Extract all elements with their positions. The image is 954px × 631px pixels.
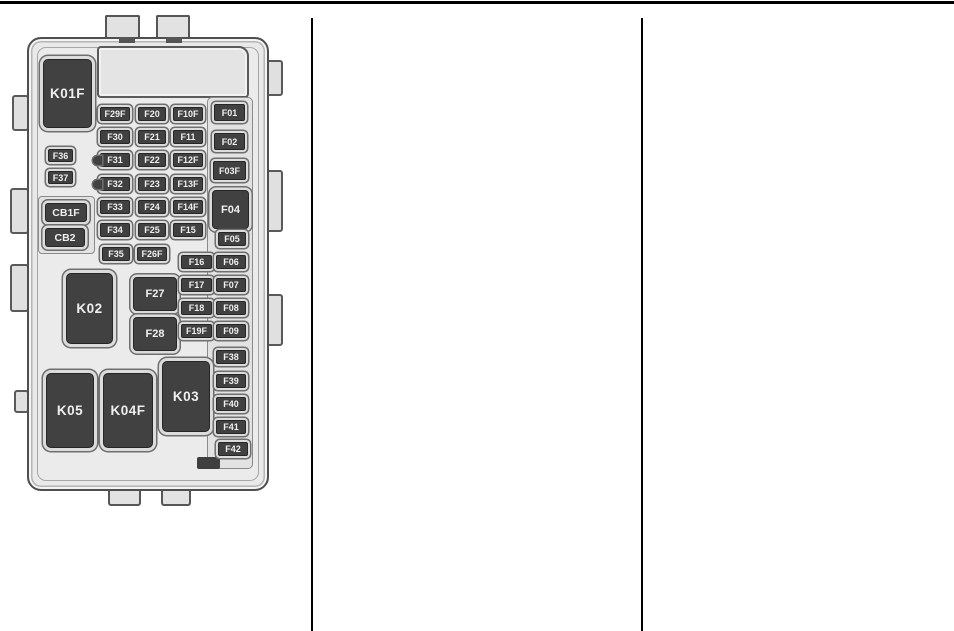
component-f35: F35 bbox=[102, 247, 130, 261]
component-k01f: K01F bbox=[43, 59, 92, 128]
component-f31: F31 bbox=[100, 153, 130, 167]
component-f10f: F10F bbox=[173, 107, 203, 121]
component-f07: F07 bbox=[216, 278, 246, 292]
component-f23: F23 bbox=[138, 177, 166, 191]
component-f15: F15 bbox=[173, 223, 203, 237]
component-f32: F32 bbox=[100, 177, 130, 191]
component-f38: F38 bbox=[216, 350, 246, 364]
component-f06: F06 bbox=[216, 255, 246, 269]
component-f09: F09 bbox=[216, 324, 246, 338]
component-f11: F11 bbox=[173, 130, 203, 144]
component-f27: F27 bbox=[133, 277, 177, 311]
component-f12f: F12F bbox=[173, 153, 203, 167]
component-f37: F37 bbox=[48, 171, 73, 184]
component-f18: F18 bbox=[181, 301, 212, 315]
component-f39: F39 bbox=[216, 374, 246, 388]
component-f26f: F26F bbox=[137, 247, 167, 261]
component-k04f: K04F bbox=[103, 373, 153, 448]
component-f36: F36 bbox=[48, 149, 73, 162]
component-k03: K03 bbox=[162, 361, 210, 432]
component-f25: F25 bbox=[138, 223, 166, 237]
fusebox-components: K01FK02K03K04FK05F04F27F28CB1FCB2F36F37F… bbox=[0, 0, 954, 631]
component-f14f: F14F bbox=[173, 200, 203, 214]
component-f13f: F13F bbox=[173, 177, 203, 191]
component-f16: F16 bbox=[181, 255, 212, 269]
component-f34: F34 bbox=[100, 223, 130, 237]
component-f03f: F03F bbox=[213, 161, 246, 180]
component-f41: F41 bbox=[216, 420, 246, 434]
component-f40: F40 bbox=[216, 397, 246, 411]
component-f29f: F29F bbox=[100, 107, 130, 121]
component-cb2: CB2 bbox=[45, 228, 85, 247]
component-f28: F28 bbox=[133, 317, 177, 351]
component-f24: F24 bbox=[138, 200, 166, 214]
component-cb1f: CB1F bbox=[45, 203, 87, 222]
component-f17: F17 bbox=[181, 278, 212, 292]
component-f05: F05 bbox=[218, 232, 246, 246]
fuse-box-diagram: K01FK02K03K04FK05F04F27F28CB1FCB2F36F37F… bbox=[0, 0, 954, 631]
manual-page: K01FK02K03K04FK05F04F27F28CB1FCB2F36F37F… bbox=[0, 0, 954, 631]
component-f30: F30 bbox=[100, 130, 130, 144]
component-f19f: F19F bbox=[181, 324, 212, 338]
component-f04: F04 bbox=[212, 190, 249, 229]
component-f22: F22 bbox=[138, 153, 166, 167]
component-f33: F33 bbox=[100, 200, 130, 214]
component-k02: K02 bbox=[66, 273, 113, 344]
component-f42: F42 bbox=[218, 442, 248, 456]
component-f08: F08 bbox=[216, 301, 246, 315]
component-k05: K05 bbox=[46, 373, 94, 448]
component-f02: F02 bbox=[214, 133, 245, 150]
component-f20: F20 bbox=[138, 107, 166, 121]
component-f01: F01 bbox=[214, 104, 245, 121]
component-f21: F21 bbox=[138, 130, 166, 144]
